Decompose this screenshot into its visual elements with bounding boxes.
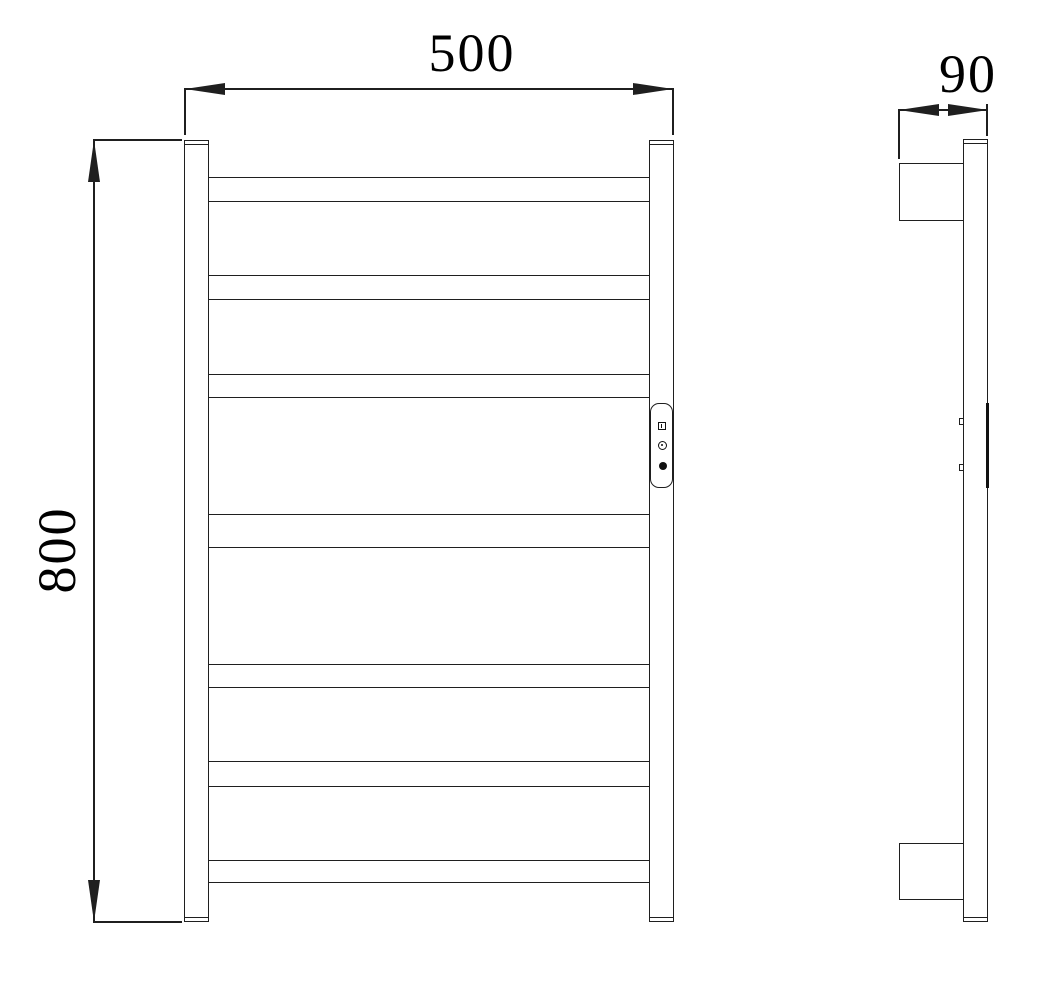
width-dim-extension-right bbox=[672, 88, 674, 135]
depth-dim-extension-right bbox=[986, 104, 988, 136]
depth-dim-extension-left bbox=[898, 109, 900, 159]
display-icon bbox=[658, 422, 666, 430]
side-button-tab-1 bbox=[959, 418, 964, 425]
front-left-rail-bottom-cap bbox=[185, 917, 208, 919]
depth-dimension-label: 90 bbox=[908, 47, 1028, 101]
control-panel-side-profile bbox=[986, 403, 989, 488]
front-right-rail bbox=[649, 140, 674, 922]
depth-dim-arrow-right-icon bbox=[948, 104, 988, 116]
width-dimension-line bbox=[185, 88, 673, 90]
rung-5 bbox=[208, 664, 650, 688]
rung-7 bbox=[208, 860, 650, 883]
width-dimension-label: 500 bbox=[398, 26, 546, 80]
height-dimension-label: 800 bbox=[30, 477, 84, 623]
rung-3 bbox=[208, 374, 650, 398]
rung-4 bbox=[208, 514, 650, 548]
side-rail-top-cap bbox=[964, 143, 987, 145]
height-dim-arrow-bottom-icon bbox=[88, 880, 100, 922]
technical-drawing-canvas: 500 800 bbox=[0, 0, 1050, 985]
rung-2 bbox=[208, 275, 650, 300]
front-left-rail-top-cap bbox=[185, 144, 208, 146]
width-dim-arrow-right-icon bbox=[633, 83, 673, 95]
front-right-rail-bottom-cap bbox=[650, 917, 673, 919]
side-rail-bottom-cap bbox=[964, 917, 987, 919]
solid-button-icon bbox=[659, 462, 667, 470]
ring-button-icon bbox=[658, 441, 667, 450]
height-dim-extension-top bbox=[93, 139, 182, 141]
rung-6 bbox=[208, 761, 650, 787]
height-dim-extension-bottom bbox=[93, 921, 182, 923]
width-dim-arrow-left-icon bbox=[185, 83, 225, 95]
bottom-wall-bracket bbox=[899, 843, 965, 900]
top-wall-bracket bbox=[899, 163, 965, 221]
side-button-tab-2 bbox=[959, 464, 964, 471]
height-dimension-line bbox=[93, 140, 95, 922]
height-dim-arrow-top-icon bbox=[88, 140, 100, 182]
depth-dim-arrow-left-icon bbox=[899, 104, 939, 116]
rung-1 bbox=[208, 177, 650, 202]
width-dim-extension-left bbox=[184, 88, 186, 135]
side-rail bbox=[963, 139, 988, 922]
front-right-rail-top-cap bbox=[650, 144, 673, 146]
control-panel bbox=[650, 403, 673, 488]
front-left-rail bbox=[184, 140, 209, 922]
